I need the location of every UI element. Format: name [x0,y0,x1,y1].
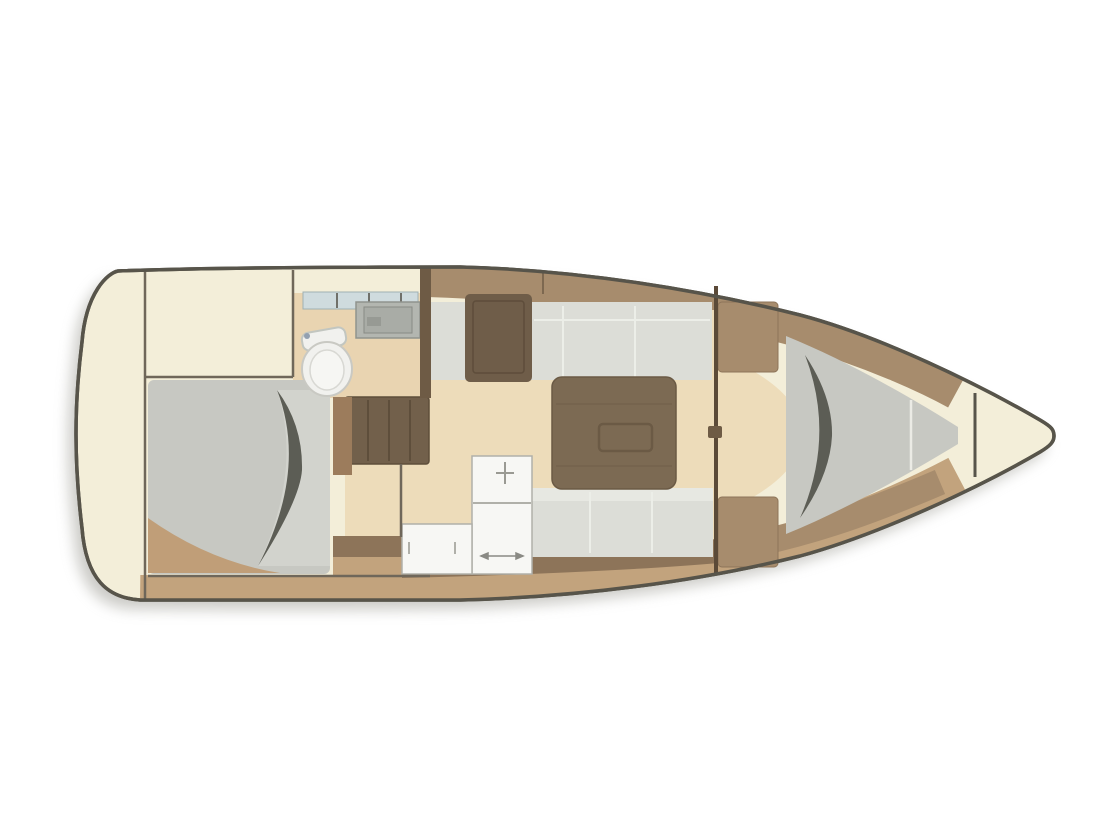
wardrobe-top [718,302,778,372]
toilet-flush-dot [304,333,310,339]
bottom-settee [530,488,713,557]
boat-floorplan [0,0,1101,826]
head-toilet [301,326,352,396]
boat-floorplan-canvas [0,0,1101,826]
salon-table [552,377,676,489]
companionway-steps [345,397,429,464]
cabin-door-handle [708,426,722,438]
head-right-wall [420,267,431,398]
head-top-strip [293,269,420,293]
side-cabinet [333,397,352,475]
wardrobe-bottom [718,497,778,567]
head-sink [356,302,420,338]
companionway-lower-trim [333,536,402,557]
nav-locker [465,294,532,382]
